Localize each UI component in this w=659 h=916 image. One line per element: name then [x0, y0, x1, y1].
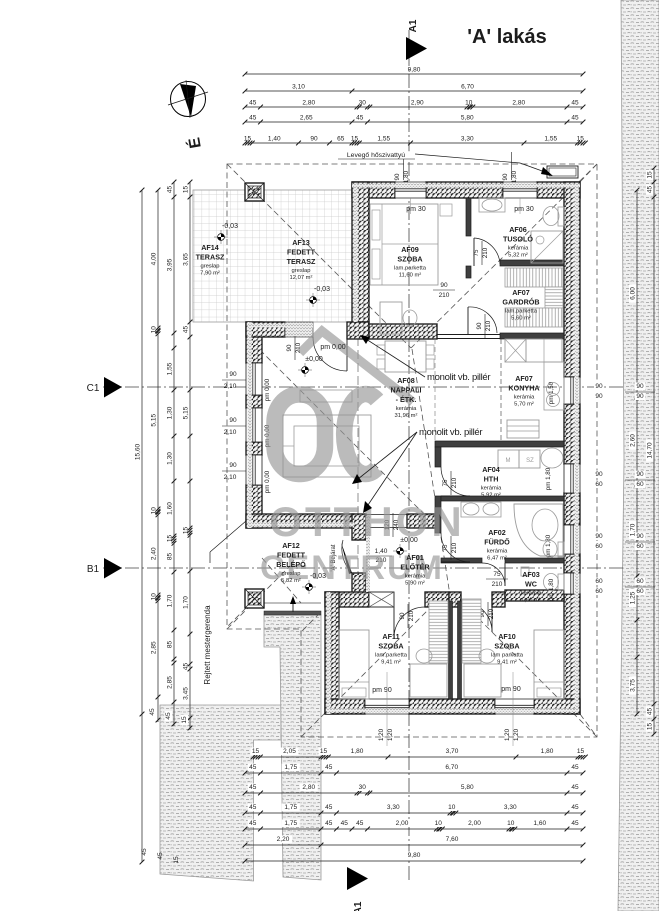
svg-text:AF13: AF13 [292, 238, 310, 247]
svg-text:1,55: 1,55 [544, 136, 557, 143]
svg-text:90: 90 [595, 471, 603, 478]
svg-text:90: 90 [310, 136, 318, 143]
svg-text:11,60 m²: 11,60 m² [399, 273, 422, 279]
svg-text:lam.parketta: lam.parketta [375, 653, 408, 659]
svg-text:FEDETT: FEDETT [287, 248, 316, 257]
svg-text:90: 90 [502, 173, 509, 180]
svg-text:Levegő hőszivattyú: Levegő hőszivattyú [347, 152, 405, 159]
svg-text:60: 60 [595, 543, 603, 550]
svg-text:FEDETT: FEDETT [277, 551, 306, 560]
svg-text:15: 15 [183, 186, 190, 194]
svg-text:1,75: 1,75 [284, 804, 297, 811]
svg-text:2,85: 2,85 [151, 641, 158, 654]
svg-text:65: 65 [337, 136, 345, 143]
svg-text:SZOBA: SZOBA [494, 642, 519, 651]
svg-text:45: 45 [571, 115, 579, 122]
svg-text:90: 90 [636, 471, 644, 478]
svg-text:15: 15 [577, 748, 585, 755]
svg-text:kerámia: kerámia [396, 406, 417, 412]
svg-text:1,80: 1,80 [403, 170, 410, 183]
svg-text:15: 15 [244, 136, 252, 143]
svg-text:monolit vb. pillér: monolit vb. pillér [427, 372, 490, 383]
svg-text:31,96 m²: 31,96 m² [395, 413, 418, 419]
svg-text:85: 85 [167, 553, 174, 561]
svg-text:90: 90 [636, 383, 644, 390]
svg-text:210: 210 [439, 292, 450, 299]
svg-text:pm 90: pm 90 [501, 686, 521, 693]
svg-text:5,80: 5,80 [461, 784, 474, 791]
svg-text:210: 210 [485, 320, 492, 331]
svg-text:A1: A1 [408, 19, 419, 32]
svg-text:KONYHA: KONYHA [508, 384, 539, 393]
svg-text:1,20: 1,20 [513, 728, 520, 741]
svg-text:5,82 m²: 5,82 m² [281, 578, 301, 584]
svg-text:ELŐTÉR: ELŐTÉR [400, 563, 430, 572]
svg-text:±0,00: ±0,00 [400, 537, 418, 544]
svg-text:45: 45 [249, 820, 257, 827]
svg-text:greslap: greslap [281, 571, 300, 577]
svg-text:HTH: HTH [484, 475, 499, 484]
svg-text:'A' lakás: 'A' lakás [467, 26, 547, 48]
svg-text:1,60: 1,60 [167, 502, 174, 515]
svg-text:30: 30 [359, 100, 367, 107]
svg-text:1,20: 1,20 [504, 728, 511, 741]
svg-text:45: 45 [571, 100, 579, 107]
svg-text:pm 30: pm 30 [514, 206, 534, 213]
svg-text:pm 0,00: pm 0,00 [264, 378, 271, 401]
svg-text:2,90: 2,90 [411, 100, 424, 107]
svg-text:kerámia: kerámia [481, 486, 502, 492]
svg-text:60: 60 [595, 588, 603, 595]
svg-text:1,20: 1,20 [378, 728, 385, 741]
svg-text:kerámia: kerámia [521, 591, 542, 597]
svg-text:45: 45 [571, 804, 579, 811]
svg-text:3,75: 3,75 [630, 679, 637, 692]
svg-text:15: 15 [647, 723, 654, 731]
svg-text:M: M [506, 458, 511, 464]
svg-text:±0,00: ±0,00 [305, 356, 323, 363]
svg-text:monolit vb. pillér: monolit vb. pillér [419, 427, 482, 438]
svg-text:AF02: AF02 [488, 528, 506, 537]
svg-text:SZOBA: SZOBA [397, 255, 422, 264]
svg-text:1,60: 1,60 [533, 820, 546, 827]
svg-text:10: 10 [507, 820, 515, 827]
svg-text:2,20: 2,20 [277, 836, 290, 843]
svg-text:45: 45 [341, 820, 349, 827]
svg-text:15: 15 [173, 856, 180, 864]
svg-text:2,80: 2,80 [302, 784, 315, 791]
svg-text:AF07: AF07 [515, 374, 533, 383]
svg-text:WC: WC [525, 580, 537, 589]
svg-text:2,85: 2,85 [167, 676, 174, 689]
svg-text:45: 45 [183, 663, 190, 671]
svg-text:14,70: 14,70 [647, 442, 654, 459]
svg-text:2,40: 2,40 [151, 547, 158, 560]
svg-text:90: 90 [286, 344, 293, 351]
svg-text:45: 45 [167, 186, 174, 194]
svg-text:1,30: 1,30 [167, 406, 174, 419]
svg-text:60: 60 [636, 578, 644, 585]
svg-text:90: 90 [394, 173, 401, 180]
svg-text:45: 45 [325, 804, 333, 811]
svg-text:6,00: 6,00 [630, 287, 637, 300]
svg-text:60: 60 [595, 481, 603, 488]
svg-text:45: 45 [571, 820, 579, 827]
svg-text:7,60: 7,60 [446, 836, 459, 843]
svg-text:É: É [184, 136, 205, 150]
svg-text:1,80: 1,80 [351, 748, 364, 755]
svg-text:1,75: 1,75 [284, 820, 297, 827]
svg-text:TUSOLÓ: TUSOLÓ [503, 235, 533, 244]
svg-text:kerámia: kerámia [514, 395, 535, 401]
svg-text:45: 45 [183, 326, 190, 334]
svg-text:5,92 m²: 5,92 m² [481, 493, 501, 499]
svg-text:FÜRDŐ: FÜRDŐ [484, 538, 510, 547]
svg-text:SZ: SZ [526, 458, 534, 464]
svg-text:1,55: 1,55 [167, 362, 174, 375]
svg-text:75: 75 [493, 571, 501, 578]
svg-text:90: 90 [636, 393, 644, 400]
svg-text:1,80: 1,80 [541, 748, 554, 755]
svg-text:15: 15 [252, 748, 260, 755]
svg-text:AF11: AF11 [382, 632, 399, 641]
svg-text:1,80: 1,80 [511, 170, 518, 183]
svg-text:15: 15 [320, 748, 328, 755]
svg-text:1,60 m²: 1,60 m² [521, 598, 541, 604]
svg-text:9,80: 9,80 [408, 67, 421, 74]
svg-text:210: 210 [482, 247, 489, 258]
svg-text:90: 90 [229, 462, 237, 469]
svg-text:Rejtett mestergerenda: Rejtett mestergerenda [203, 605, 212, 685]
svg-text:90: 90 [636, 533, 644, 540]
svg-text:10: 10 [151, 326, 158, 334]
svg-text:BELÉPŐ: BELÉPŐ [276, 560, 306, 569]
svg-text:kerámia: kerámia [405, 574, 426, 580]
svg-text:30: 30 [359, 784, 367, 791]
svg-text:45: 45 [249, 784, 257, 791]
svg-text:45: 45 [149, 708, 156, 716]
svg-text:1,75: 1,75 [284, 764, 297, 771]
svg-text:15: 15 [577, 136, 585, 143]
svg-text:5,15: 5,15 [183, 406, 190, 419]
svg-text:45: 45 [249, 100, 257, 107]
svg-text:10: 10 [435, 820, 443, 827]
svg-text:AF08: AF08 [397, 376, 415, 385]
svg-text:45: 45 [157, 852, 164, 860]
svg-text:90: 90 [440, 282, 448, 289]
svg-text:AF14: AF14 [201, 243, 219, 252]
svg-text:45: 45 [325, 820, 333, 827]
svg-text:NAPPALI: NAPPALI [390, 386, 421, 395]
svg-text:kerámia: kerámia [487, 549, 508, 555]
svg-text:SZOBA: SZOBA [378, 642, 403, 651]
svg-text:3,70: 3,70 [446, 748, 459, 755]
svg-text:C1: C1 [87, 383, 100, 394]
svg-text:2,80: 2,80 [302, 100, 315, 107]
svg-text:75: 75 [473, 249, 480, 256]
svg-text:90: 90 [595, 383, 603, 390]
svg-text:3,95: 3,95 [167, 258, 174, 271]
svg-text:A1: A1 [353, 901, 364, 911]
svg-text:1,30: 1,30 [167, 452, 174, 465]
svg-text:45: 45 [647, 186, 654, 194]
svg-text:2,05: 2,05 [283, 748, 296, 755]
svg-text:1,40: 1,40 [268, 136, 281, 143]
svg-text:5,70 m²: 5,70 m² [514, 402, 534, 408]
svg-text:15,60: 15,60 [135, 443, 142, 460]
svg-text:45: 45 [249, 804, 257, 811]
svg-text:15: 15 [181, 716, 188, 724]
svg-text:4,00: 4,00 [151, 252, 158, 265]
svg-text:85: 85 [167, 641, 174, 649]
svg-text:15: 15 [183, 527, 190, 535]
svg-text:45: 45 [647, 708, 654, 716]
svg-text:2,10: 2,10 [224, 474, 237, 481]
svg-text:45: 45 [571, 784, 579, 791]
svg-text:TERASZ: TERASZ [196, 253, 225, 262]
svg-text:AF12: AF12 [282, 541, 300, 550]
svg-text:2,10: 2,10 [224, 429, 237, 436]
svg-text:B1: B1 [87, 564, 100, 575]
svg-text:1,55: 1,55 [377, 136, 390, 143]
svg-text:3,30: 3,30 [504, 804, 517, 811]
svg-text:90: 90 [229, 371, 237, 378]
svg-text:2,00: 2,00 [468, 820, 481, 827]
svg-text:10: 10 [151, 593, 158, 601]
svg-text:45: 45 [325, 764, 333, 771]
svg-text:GARDRÓB: GARDRÓB [502, 298, 539, 307]
svg-text:AF10: AF10 [498, 632, 516, 641]
svg-text:45: 45 [249, 115, 257, 122]
svg-text:-0,03: -0,03 [222, 223, 238, 230]
svg-text:210: 210 [492, 581, 503, 588]
svg-text:TERASZ: TERASZ [287, 257, 316, 266]
svg-text:1,70: 1,70 [183, 596, 190, 609]
svg-text:2,00: 2,00 [396, 820, 409, 827]
svg-text:2,80: 2,80 [512, 100, 525, 107]
svg-text:3,45: 3,45 [183, 687, 190, 700]
svg-text:- ÉTK.: - ÉTK. [396, 395, 417, 404]
svg-text:greslap: greslap [291, 268, 310, 274]
svg-text:2,65: 2,65 [300, 115, 313, 122]
svg-text:AF09: AF09 [401, 245, 419, 254]
svg-text:60: 60 [636, 543, 644, 550]
svg-text:AF06: AF06 [509, 225, 527, 234]
svg-text:6,70: 6,70 [461, 84, 474, 91]
svg-text:-0,03: -0,03 [310, 573, 326, 580]
svg-text:AF01: AF01 [406, 553, 424, 562]
svg-text:90: 90 [595, 533, 603, 540]
svg-text:pm 30: pm 30 [406, 206, 426, 213]
svg-text:15: 15 [647, 171, 654, 179]
svg-text:AF07: AF07 [512, 288, 530, 297]
svg-text:lam.parketta: lam.parketta [394, 266, 427, 272]
svg-text:90: 90 [399, 612, 406, 619]
svg-text:3,65: 3,65 [183, 253, 190, 266]
svg-text:7,90 m²: 7,90 m² [200, 271, 220, 277]
svg-text:pm 1,80: pm 1,80 [545, 467, 552, 490]
svg-text:5,60 m²: 5,60 m² [511, 316, 531, 322]
svg-text:pm 1,50: pm 1,50 [548, 381, 555, 404]
svg-text:pm 90: pm 90 [372, 687, 392, 694]
svg-text:9,80: 9,80 [408, 852, 421, 859]
svg-text:greslap: greslap [200, 264, 219, 270]
svg-text:60: 60 [636, 481, 644, 488]
svg-text:45: 45 [165, 712, 172, 720]
svg-text:15: 15 [351, 136, 359, 143]
svg-text:45: 45 [356, 115, 364, 122]
svg-text:9,41 m²: 9,41 m² [381, 660, 401, 666]
svg-text:pm 0,00: pm 0,00 [264, 470, 271, 493]
svg-text:45: 45 [356, 820, 364, 827]
svg-text:lam parketta: lam parketta [491, 653, 524, 659]
svg-text:10: 10 [465, 100, 473, 107]
svg-text:60: 60 [636, 588, 644, 595]
svg-text:5,32 m²: 5,32 m² [508, 253, 528, 259]
svg-text:10: 10 [448, 804, 456, 811]
svg-text:2,60: 2,60 [630, 434, 637, 447]
svg-text:60: 60 [595, 578, 603, 585]
svg-text:lam.parketta: lam.parketta [505, 309, 538, 315]
svg-text:45: 45 [571, 764, 579, 771]
svg-text:1,20: 1,20 [387, 728, 394, 741]
svg-text:1,70: 1,70 [167, 594, 174, 607]
svg-text:3,10: 3,10 [292, 84, 305, 91]
svg-text:10: 10 [151, 507, 158, 515]
svg-text:210: 210 [408, 610, 415, 621]
svg-text:210: 210 [451, 477, 458, 488]
svg-text:6,47 m²: 6,47 m² [487, 556, 507, 562]
svg-text:5,15: 5,15 [151, 414, 158, 427]
svg-text:2,10: 2,10 [224, 383, 237, 390]
svg-text:90: 90 [595, 393, 603, 400]
svg-text:75: 75 [442, 479, 449, 486]
svg-text:5,80: 5,80 [461, 115, 474, 122]
svg-text:90: 90 [476, 322, 483, 329]
svg-text:pm 0,00: pm 0,00 [320, 344, 345, 351]
svg-text:12,07 m²: 12,07 m² [290, 275, 313, 281]
svg-text:5,90 m²: 5,90 m² [405, 581, 425, 587]
svg-text:3,30: 3,30 [461, 136, 474, 143]
svg-text:kerámia: kerámia [508, 246, 529, 252]
svg-text:90: 90 [229, 417, 237, 424]
svg-text:210: 210 [488, 608, 495, 619]
svg-text:6,70: 6,70 [445, 764, 458, 771]
svg-text:AF03: AF03 [522, 570, 540, 579]
svg-text:9,41 m²: 9,41 m² [497, 660, 517, 666]
svg-text:pm 1,80: pm 1,80 [545, 534, 552, 557]
svg-text:15: 15 [167, 535, 174, 543]
svg-text:AF04: AF04 [482, 465, 500, 474]
svg-text:45: 45 [249, 764, 257, 771]
svg-text:3,30: 3,30 [387, 804, 400, 811]
svg-text:-0,03: -0,03 [314, 286, 330, 293]
